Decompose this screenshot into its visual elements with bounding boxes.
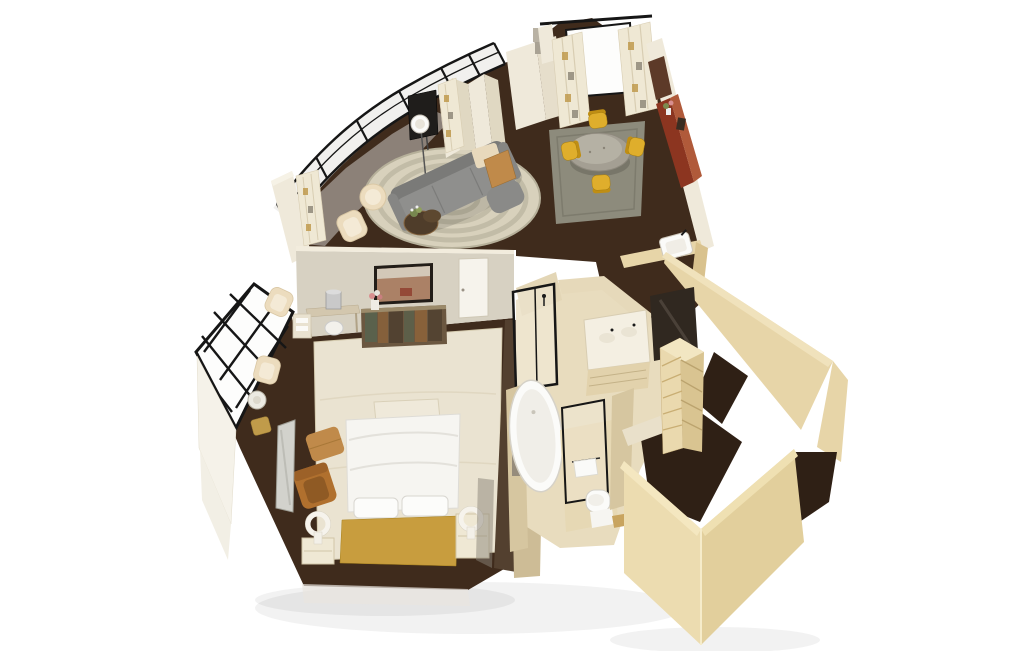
pillow — [402, 496, 448, 516]
sink-basin — [599, 333, 615, 343]
faucet — [611, 329, 614, 332]
vanity-counter — [584, 310, 650, 370]
patina-spot — [428, 307, 442, 341]
lamp-shade-top — [415, 119, 425, 129]
dining-chair — [624, 136, 645, 157]
patina-spot — [415, 308, 427, 342]
tv-screen-accent — [400, 288, 412, 296]
suite-floor-plan — [0, 0, 1024, 651]
towel — [296, 326, 308, 331]
stone-speckle — [603, 147, 605, 149]
side-table — [248, 391, 266, 409]
floor-plan-canvas — [0, 0, 1024, 651]
king-bed — [340, 399, 460, 566]
door-knob — [462, 289, 465, 292]
toilet-seat — [588, 494, 604, 506]
flowers — [369, 293, 375, 299]
sink-basin — [621, 327, 637, 337]
dining-chair — [592, 174, 611, 193]
patina-spot — [365, 312, 377, 342]
vase — [666, 108, 671, 115]
towel — [574, 458, 598, 477]
desk-lamp-top — [326, 290, 341, 295]
stone-speckle — [589, 151, 591, 153]
table-center — [253, 396, 261, 404]
pillow — [354, 498, 398, 518]
door-leaf — [459, 258, 488, 318]
flowers — [663, 103, 669, 109]
dining-chair — [588, 109, 608, 129]
lamp-base — [314, 532, 322, 544]
desk-lamp — [326, 292, 341, 309]
flower — [411, 209, 414, 212]
flower — [416, 206, 419, 209]
desk-leg — [356, 313, 357, 332]
bedroom — [196, 246, 542, 606]
chair-seat — [588, 112, 608, 129]
patina-spot — [389, 310, 403, 343]
dining-chair — [560, 140, 581, 161]
table-tier — [423, 210, 441, 223]
faucet — [633, 324, 636, 327]
bedroom-door — [459, 258, 488, 318]
headboard — [340, 516, 458, 566]
vase — [371, 300, 379, 310]
corner-shelf — [293, 314, 311, 338]
patina-spot — [404, 309, 414, 342]
desk-stool — [325, 321, 343, 335]
patina-spot — [378, 311, 388, 343]
lamp-base — [467, 527, 475, 539]
shelving-unit — [660, 338, 704, 454]
wall-shadow-band — [476, 478, 494, 568]
wc-glass-door — [562, 400, 608, 503]
flowers — [378, 295, 383, 300]
towel — [296, 318, 308, 323]
chair-seat — [592, 174, 611, 190]
wall-tv — [374, 263, 433, 305]
walk-in-shower — [513, 284, 557, 390]
flowers — [669, 101, 674, 106]
